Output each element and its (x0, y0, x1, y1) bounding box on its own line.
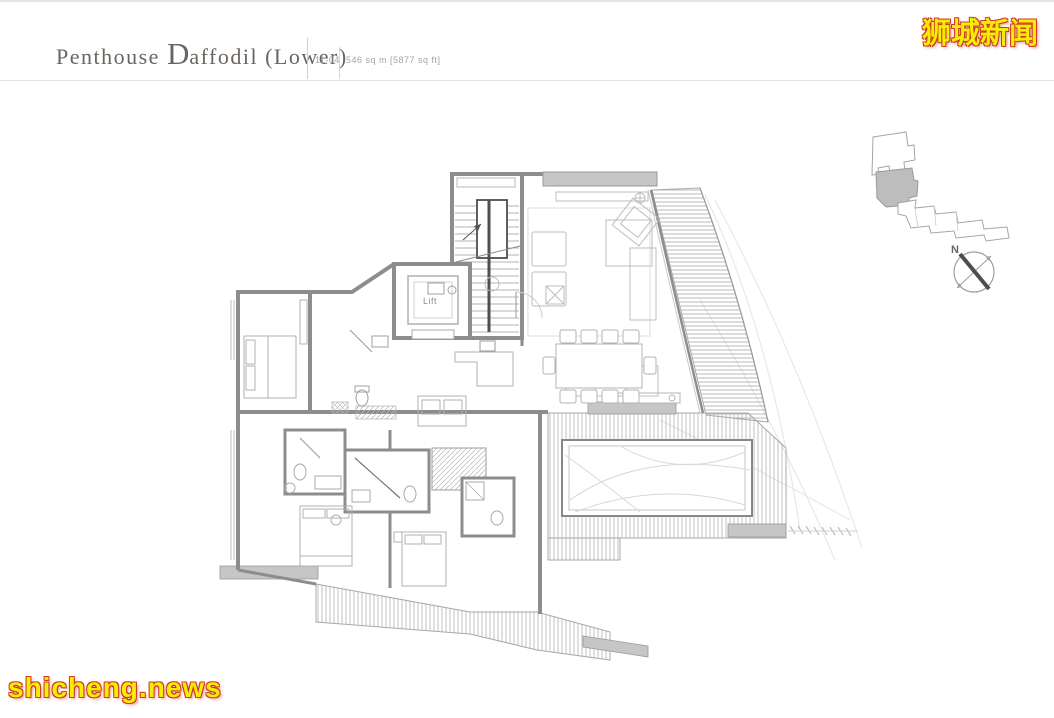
swimming-pool (562, 440, 752, 516)
compass-needle (960, 254, 989, 289)
top-ledge (543, 172, 657, 186)
bottom-deck (220, 566, 648, 660)
compass: N (951, 244, 994, 292)
key-plan (872, 132, 1009, 241)
left-windows (231, 300, 234, 560)
lift-label: Lift (423, 296, 437, 306)
page: { "header": { "title_prefix": "Penthouse… (0, 0, 1054, 718)
curved-balcony (651, 188, 768, 422)
dining-set (543, 330, 656, 403)
floor-plan: Lift (0, 0, 1054, 718)
compass-north-label: N (951, 244, 959, 256)
lift: Lift (394, 264, 470, 339)
bathroom-3 (462, 478, 514, 536)
bedroom-left (244, 300, 307, 398)
bathroom-2 (345, 450, 429, 512)
